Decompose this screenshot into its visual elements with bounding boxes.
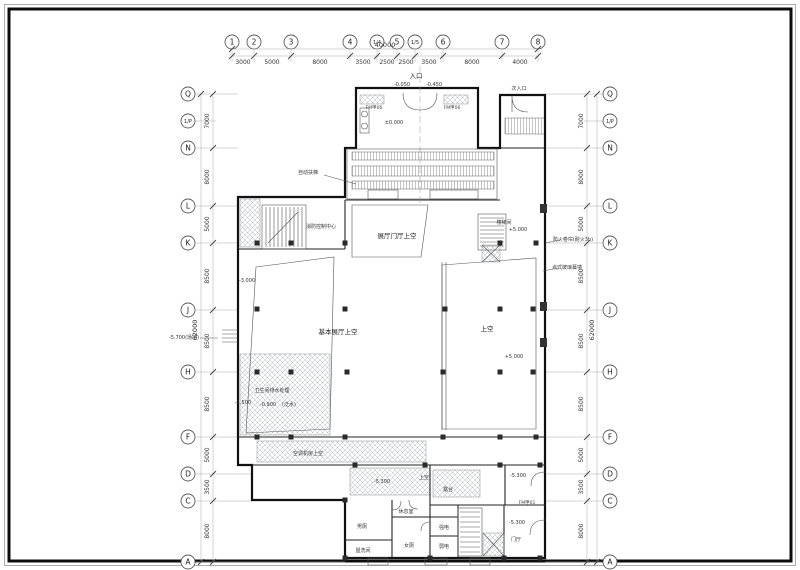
dim-col: 5000 bbox=[264, 59, 279, 66]
dim-total-width: 40000 bbox=[375, 41, 396, 49]
door-tag: FM甲06 bbox=[444, 105, 461, 111]
dim-row: 3500 bbox=[204, 479, 211, 494]
inner-walls bbox=[238, 148, 545, 558]
room-doors bbox=[392, 500, 430, 531]
grid-col-6: 6 bbox=[441, 38, 446, 47]
dim-col: 2500 bbox=[398, 59, 413, 66]
dim-row: 8500 bbox=[204, 268, 211, 283]
label-level-minus045: -0.450 bbox=[426, 82, 442, 88]
column bbox=[441, 435, 446, 440]
dim-col: 8000 bbox=[312, 59, 327, 66]
escalator-3 bbox=[352, 181, 494, 189]
column bbox=[531, 307, 536, 312]
label-entry-hall: 门厅 bbox=[511, 536, 521, 543]
column bbox=[255, 435, 260, 440]
door-tag: FM甲01 bbox=[519, 500, 536, 506]
ac-room-hatch bbox=[257, 441, 426, 462]
grid-row-H: H bbox=[185, 368, 191, 377]
column bbox=[498, 241, 503, 246]
label-level-plus5-void: +5.000 bbox=[505, 354, 524, 360]
column bbox=[534, 241, 539, 246]
dim-col: 3500 bbox=[355, 59, 370, 66]
dim-row: 8500 bbox=[204, 333, 211, 348]
column bbox=[423, 463, 428, 468]
grid-col-2: 2 bbox=[252, 38, 257, 47]
dim-col: 8000 bbox=[464, 59, 479, 66]
column bbox=[498, 307, 503, 312]
column bbox=[343, 435, 348, 440]
label-fire-control: 消防控制中心 bbox=[306, 223, 336, 230]
grid-row-A: A bbox=[185, 558, 191, 567]
label-toilet-note: 卫生间排水处理 bbox=[254, 387, 289, 394]
column bbox=[343, 241, 348, 246]
bollard bbox=[362, 123, 368, 129]
dim-row: 8000 bbox=[204, 169, 211, 184]
sub-entrance-steps bbox=[505, 118, 545, 134]
curtain-wall-mullion bbox=[540, 204, 547, 213]
grid-row-N-right: N bbox=[607, 144, 613, 153]
label-washroom: 盥洗间 bbox=[355, 547, 370, 554]
dim-row: 8000 bbox=[578, 523, 585, 538]
column bbox=[441, 370, 446, 375]
dim-row: 3500 bbox=[578, 479, 585, 494]
stair-south bbox=[458, 508, 482, 556]
column bbox=[502, 556, 507, 561]
grid-row-D-right: D bbox=[607, 470, 613, 479]
dimensions-top: 40000 3000 5000 8000 3500 2500 2500 3500… bbox=[229, 41, 541, 66]
dim-row: 7000 bbox=[578, 113, 585, 128]
column bbox=[353, 463, 358, 468]
column bbox=[498, 463, 503, 468]
label-ac-room: 空调机房上空 bbox=[293, 450, 323, 457]
dim-col: 3500 bbox=[421, 59, 436, 66]
dim-col: 4000 bbox=[512, 59, 527, 66]
dim-row: 8500 bbox=[578, 396, 585, 411]
column bbox=[343, 556, 348, 561]
grid-row-Q: Q bbox=[185, 90, 191, 99]
column bbox=[345, 370, 350, 375]
column bbox=[498, 435, 503, 440]
shaft-hatch bbox=[240, 199, 260, 247]
grid-row-C: C bbox=[185, 497, 190, 506]
label-level-minus005: -0.050 bbox=[394, 82, 410, 88]
label-level-minus53-c: -5.300 bbox=[510, 473, 526, 479]
label-lounge: 休息室 bbox=[398, 508, 413, 515]
label-male-wc: 男厕 bbox=[357, 524, 367, 530]
label-sub-entrance: 次入口 bbox=[511, 85, 526, 92]
dimensions-left: 62000 7000 8000 5000 8500 8500 8500 5000… bbox=[191, 91, 216, 565]
dim-total-height-right: 62000 bbox=[588, 320, 596, 341]
drawing-sheet: 1 2 3 4 1/4 5 1/5 6 7 8 40000 3000 5000 … bbox=[0, 0, 800, 570]
bollard bbox=[362, 111, 368, 117]
sub-entrance-door bbox=[512, 96, 528, 112]
label-strong-elec: 强电 bbox=[439, 524, 449, 531]
expansion-joint bbox=[442, 262, 446, 430]
grid-row-F-right: F bbox=[608, 433, 612, 442]
dim-row: 5000 bbox=[578, 447, 585, 462]
column bbox=[534, 435, 539, 440]
dim-col: 3000 bbox=[235, 59, 250, 66]
column bbox=[343, 498, 348, 503]
dim-row: 5000 bbox=[204, 447, 211, 462]
label-terrace: 露台 bbox=[443, 486, 453, 493]
grid-row-1P: 1/P bbox=[184, 119, 192, 125]
label-level-minus53-b: -5.300 bbox=[509, 520, 525, 526]
column bbox=[538, 463, 543, 468]
column bbox=[289, 370, 294, 375]
grid-col-3: 3 bbox=[289, 38, 294, 47]
grid-row-Q-right: Q bbox=[607, 90, 613, 99]
label-weak-elec: 弱电 bbox=[439, 543, 449, 550]
dim-row: 8000 bbox=[578, 169, 585, 184]
toilet-area-hatch bbox=[240, 354, 330, 435]
stair-west bbox=[262, 205, 306, 249]
label-level-minus15: -1.500 bbox=[235, 400, 251, 406]
label-fire-shutter: 防火卷帘(耐火3h) bbox=[553, 236, 593, 243]
label-stair-room: 楼梯间 bbox=[496, 219, 511, 226]
grid-row-C-right: C bbox=[607, 497, 612, 506]
dimensions-right: 62000 7000 8000 5000 8500 8500 8500 5000… bbox=[578, 91, 600, 565]
label-escalator: 自动扶梯 bbox=[298, 169, 318, 176]
label-level-zero: ±0.000 bbox=[385, 120, 404, 126]
dim-row: 8500 bbox=[578, 333, 585, 348]
door-tag: FM甲06 bbox=[366, 105, 383, 111]
floor-plan-svg: 1 2 3 4 1/4 5 1/5 6 7 8 40000 3000 5000 … bbox=[0, 0, 800, 570]
grid-row-F: F bbox=[186, 433, 190, 442]
escalator-pit-2 bbox=[430, 190, 478, 199]
right-void-outline bbox=[442, 258, 536, 429]
entrance-sidelight-left bbox=[360, 95, 384, 104]
escalator-1 bbox=[352, 152, 494, 160]
grid-row-A-right: A bbox=[607, 558, 613, 567]
grid-col-4: 4 bbox=[348, 38, 353, 47]
label-female-wc: 女厕 bbox=[404, 542, 414, 549]
label-void-bottom: 上空 bbox=[419, 474, 429, 481]
label-level-minus30: -3.000 bbox=[239, 278, 255, 284]
label-level-plus5-stair: +5.000 bbox=[509, 227, 528, 233]
grid-col-8: 8 bbox=[536, 38, 541, 47]
dim-row: 8000 bbox=[204, 523, 211, 538]
label-void-right: 上空 bbox=[481, 324, 495, 333]
column bbox=[289, 435, 294, 440]
grid-col-1: 1 bbox=[230, 38, 235, 47]
curtain-wall-mullion bbox=[540, 302, 547, 311]
entrance-sidelight-right bbox=[444, 95, 468, 104]
west-exterior-steps bbox=[222, 330, 238, 342]
label-entrance: 入口 bbox=[410, 72, 423, 80]
grid-row-H-right: H bbox=[607, 368, 613, 377]
dim-row: 8500 bbox=[204, 396, 211, 411]
grid-row-N: N bbox=[185, 144, 191, 153]
label-main-hall-void: 基本展厅上空 bbox=[319, 327, 359, 336]
label-curtain-wall: 点式玻璃幕墙 bbox=[552, 264, 582, 271]
label-foyer-void: 展厅门厅上空 bbox=[378, 231, 418, 240]
escalator-bank bbox=[347, 149, 497, 199]
terrace-hatch bbox=[433, 470, 480, 497]
column bbox=[443, 307, 448, 312]
escalator-2 bbox=[352, 166, 494, 176]
label-slope: (泛水) bbox=[282, 401, 296, 408]
grid-col-7: 7 bbox=[500, 38, 505, 47]
dim-row: 5000 bbox=[578, 216, 585, 231]
column bbox=[255, 370, 260, 375]
column bbox=[255, 241, 260, 246]
grid-row-D: D bbox=[185, 470, 191, 479]
dim-row: 7000 bbox=[204, 113, 211, 128]
plan-labels: 入口 次入口 -0.050 -0.450 ±0.000 自动扶梯 展厅门厅上空 … bbox=[169, 72, 593, 554]
grid-row-1P-right: 1/P bbox=[606, 119, 614, 125]
elevator-east bbox=[482, 245, 500, 262]
dim-col: 2500 bbox=[379, 59, 394, 66]
column bbox=[428, 556, 433, 561]
column bbox=[255, 307, 260, 312]
escalator-pit-1 bbox=[368, 190, 398, 199]
column bbox=[289, 241, 294, 246]
column bbox=[538, 556, 543, 561]
elevator-south bbox=[483, 533, 504, 556]
label-site-level: -5.700(场地) bbox=[169, 334, 199, 341]
grid-row-J-right: J bbox=[608, 306, 611, 315]
curtain-wall-mullion bbox=[540, 338, 547, 347]
grid-row-J: J bbox=[186, 306, 189, 315]
column bbox=[343, 307, 348, 312]
label-level-minus09: -0.900 bbox=[260, 402, 276, 408]
grid-rows-right: Q 1/P N L K J H F D C A bbox=[545, 87, 617, 569]
column bbox=[498, 370, 503, 375]
column bbox=[531, 370, 536, 375]
label-level-minus53-a: -5.300 bbox=[374, 479, 390, 485]
dim-row: 5000 bbox=[204, 216, 211, 231]
foyer-void-outline bbox=[352, 205, 428, 257]
grid-col-1-5: 1/5 bbox=[411, 40, 419, 46]
grid-col-5: 5 bbox=[395, 38, 400, 47]
